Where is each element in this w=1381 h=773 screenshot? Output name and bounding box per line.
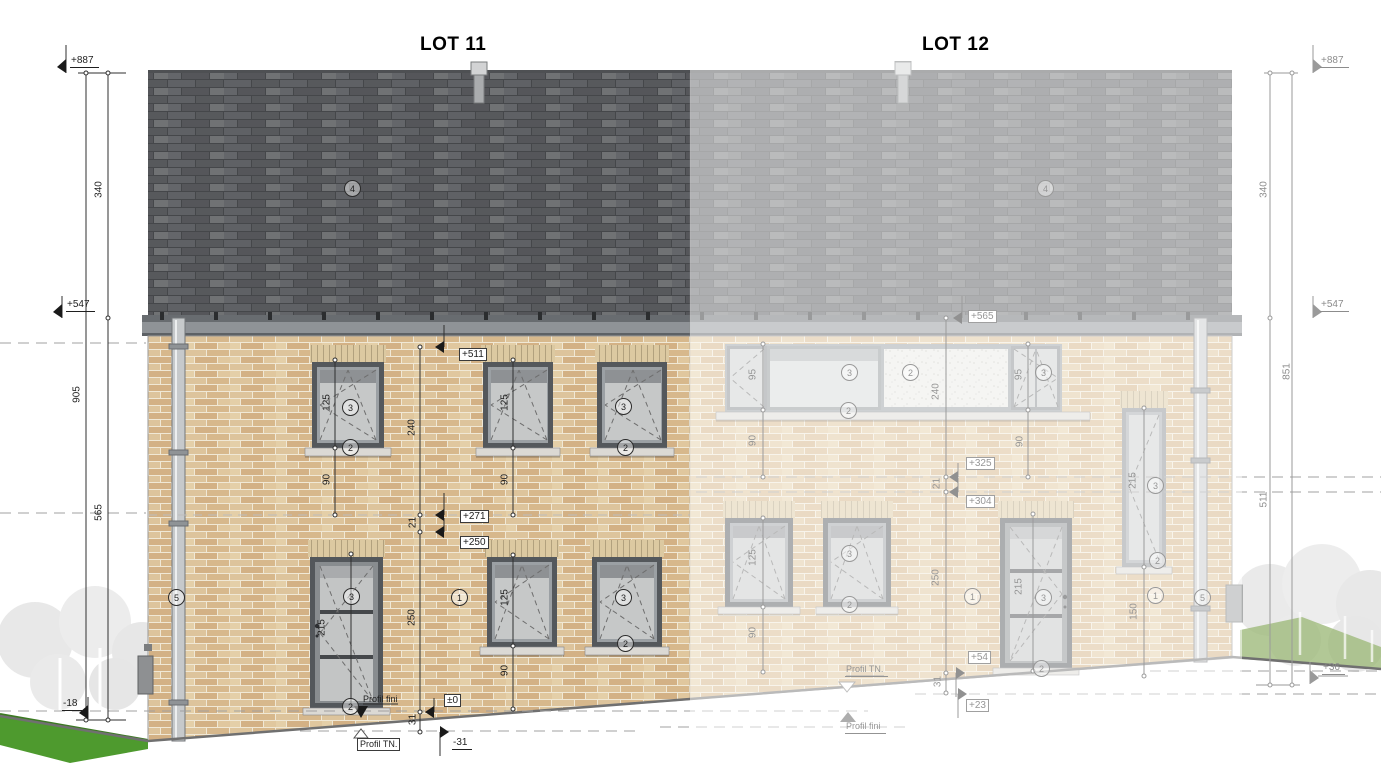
dim-label: 90 bbox=[500, 656, 511, 686]
dim-label: 250 bbox=[407, 603, 418, 633]
dim-label: 511 bbox=[1259, 485, 1270, 515]
material-ref-3: 3 bbox=[343, 588, 360, 605]
material-ref-3: 3 bbox=[615, 589, 632, 606]
dim-label: 90 bbox=[322, 465, 333, 495]
dim-label: 565 bbox=[94, 498, 105, 528]
material-ref-2: 2 bbox=[617, 439, 634, 456]
dim-label: 125 bbox=[500, 583, 511, 613]
lot11-title: LOT 11 bbox=[420, 34, 486, 56]
dim-label: 31 bbox=[408, 705, 419, 735]
level-label: +547 bbox=[1320, 299, 1349, 312]
material-ref-5: 5 bbox=[168, 589, 185, 606]
profil-fini-label: Profil fini bbox=[363, 694, 398, 705]
level-label: +271 bbox=[460, 510, 489, 523]
level-label: +511 bbox=[459, 348, 487, 361]
material-ref-1: 1 bbox=[451, 589, 468, 606]
level-label: +547 bbox=[66, 299, 95, 312]
material-ref-2: 2 bbox=[342, 439, 359, 456]
dim-label: 240 bbox=[407, 413, 418, 443]
dim-label: 340 bbox=[1259, 175, 1270, 205]
dim-label: 21 bbox=[408, 508, 419, 538]
material-ref-4: 4 bbox=[344, 180, 361, 197]
level-label: ±0 bbox=[444, 694, 461, 707]
lot12-title: LOT 12 bbox=[922, 34, 989, 56]
dim-label: 905 bbox=[72, 380, 83, 410]
dim-label: 125 bbox=[322, 388, 333, 418]
annotations-lot11: LOT 11 LOT 12 +887 340 +547 905 565 -18 … bbox=[0, 0, 1381, 773]
level-label: +887 bbox=[1320, 55, 1349, 68]
material-ref-3: 3 bbox=[615, 398, 632, 415]
material-ref-2: 2 bbox=[342, 698, 359, 715]
dim-label: 125 bbox=[500, 388, 511, 418]
material-ref-2: 2 bbox=[617, 635, 634, 652]
dim-label: 340 bbox=[94, 175, 105, 205]
level-label: -31 bbox=[452, 737, 472, 750]
level-label: +250 bbox=[460, 536, 489, 549]
elevation-drawing: +565 240 +325 21 +304 250 +54 31 +23 95 … bbox=[0, 0, 1381, 773]
dim-label: 90 bbox=[500, 465, 511, 495]
dim-label: 851 bbox=[1282, 357, 1293, 387]
level-label: +887 bbox=[70, 55, 99, 68]
material-ref-3: 3 bbox=[342, 399, 359, 416]
dim-label: 215 bbox=[317, 613, 328, 643]
profil-tn-label: Profil TN. bbox=[357, 738, 400, 751]
level-label: -18 bbox=[62, 698, 82, 711]
level-label: +36 bbox=[1322, 662, 1345, 675]
